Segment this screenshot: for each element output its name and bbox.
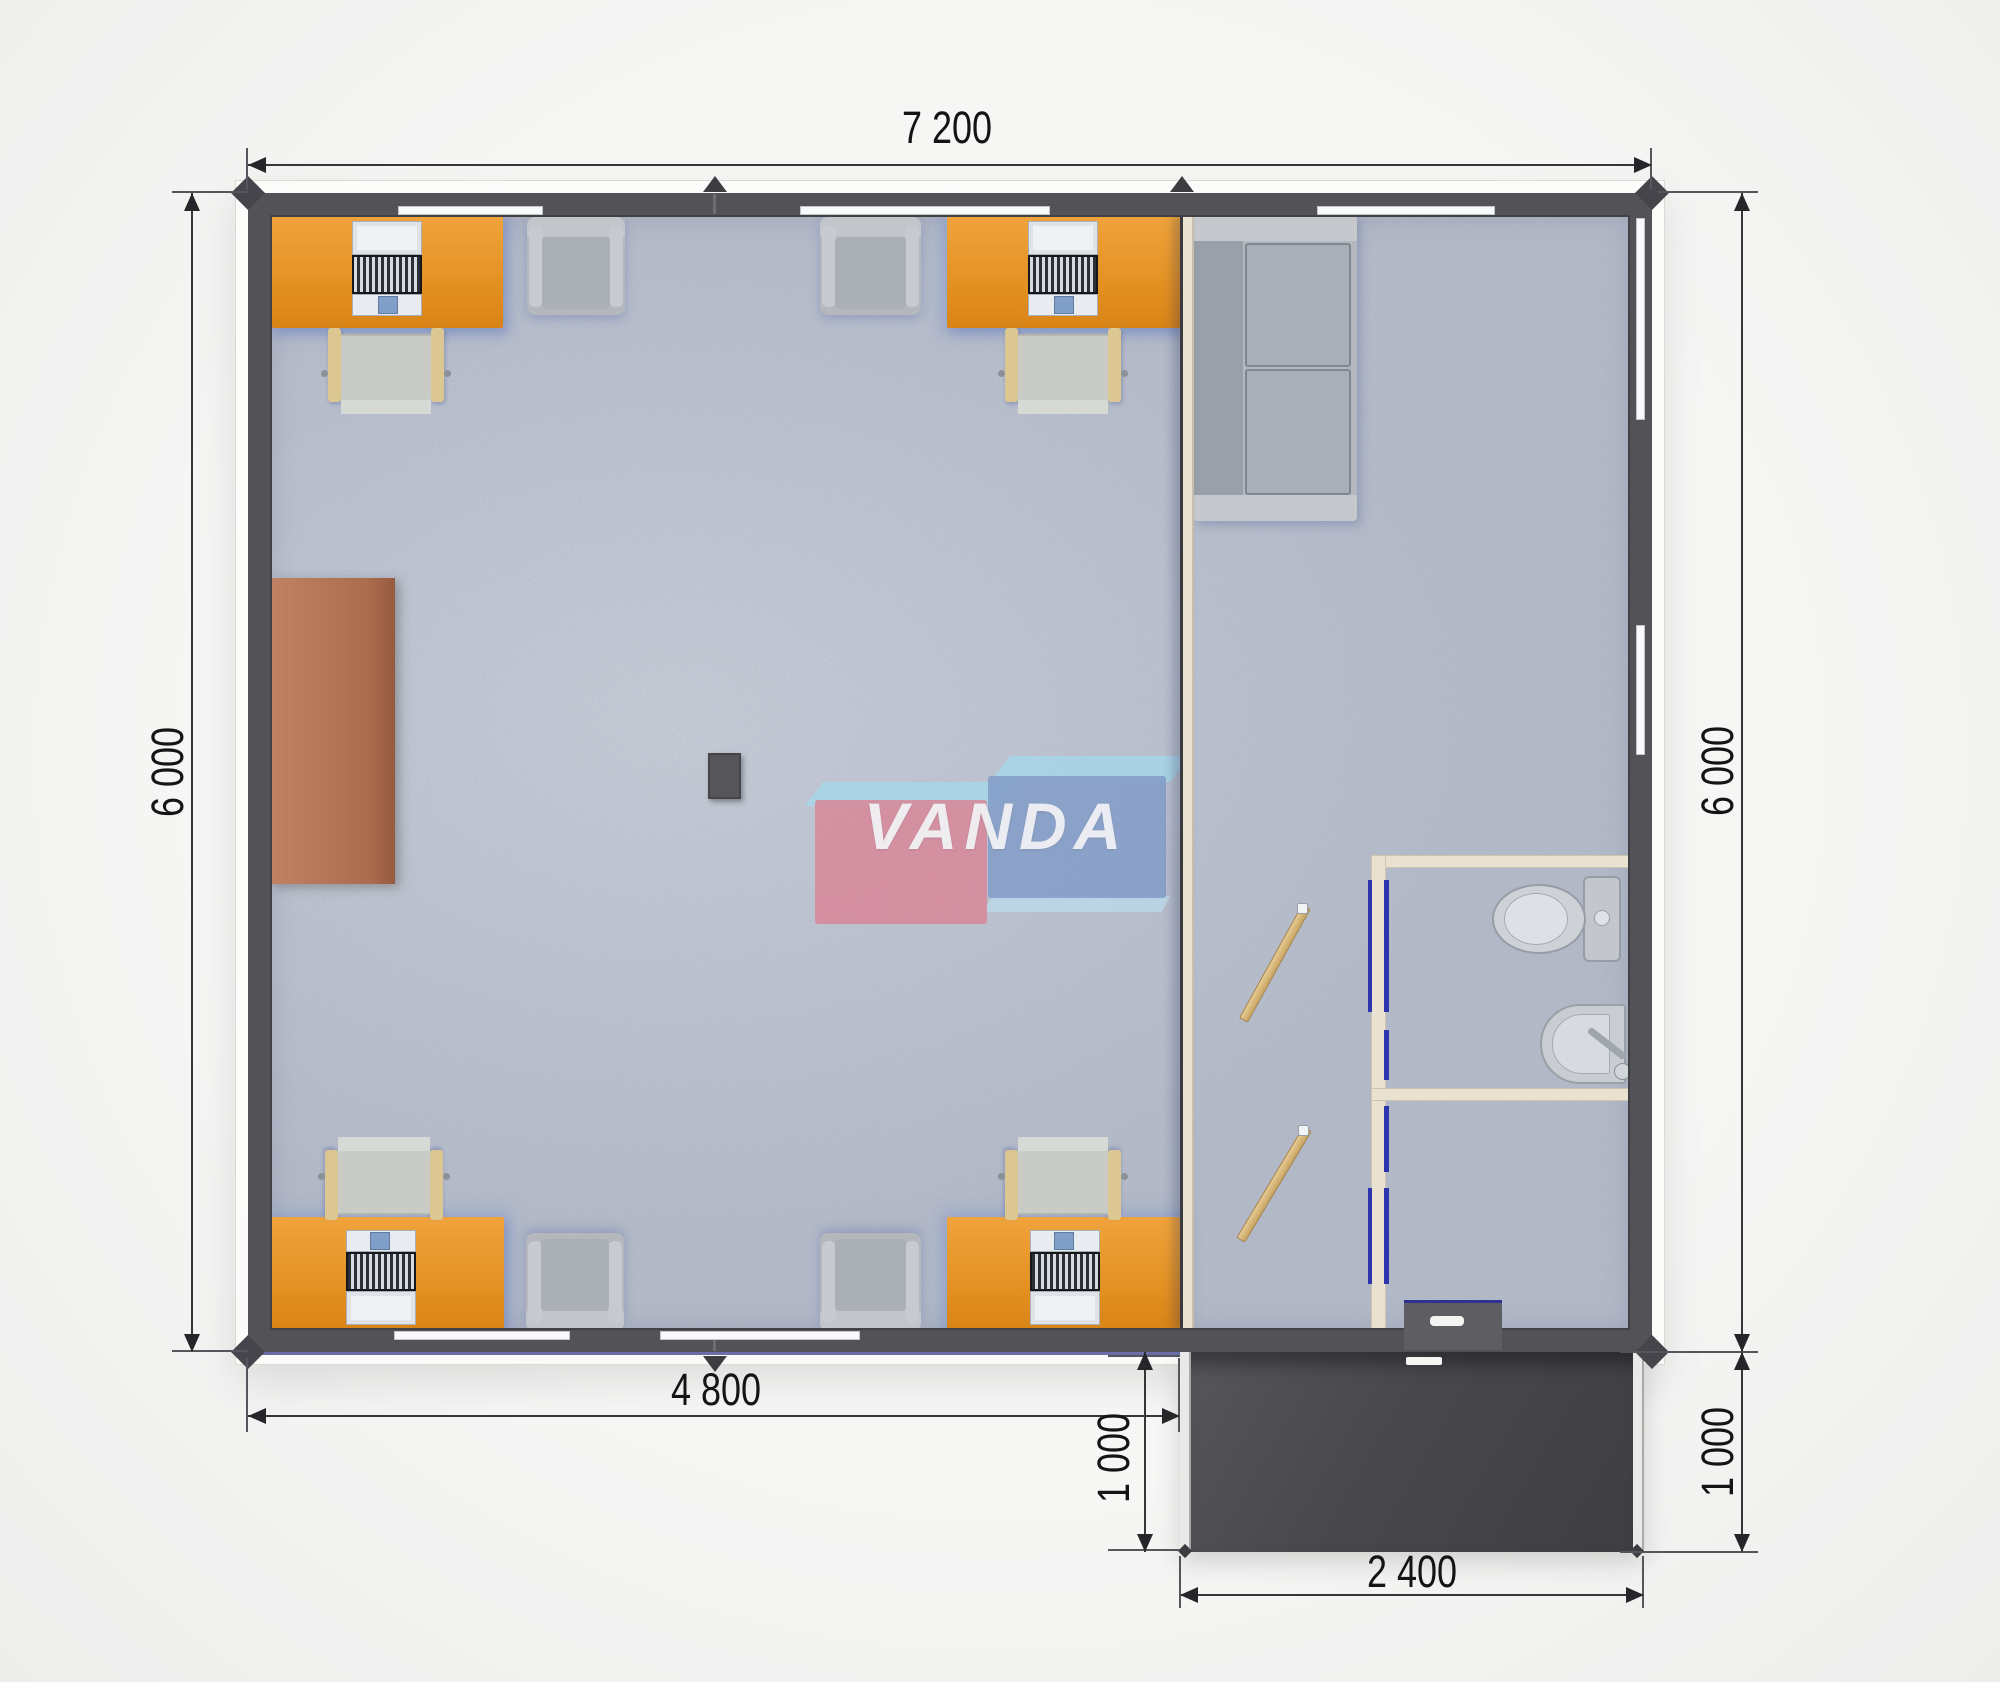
entrance-door-handle [1430,1316,1464,1326]
window-top-2 [800,206,1050,215]
window-right-1 [1636,218,1645,420]
dim-arrow [1162,1408,1180,1424]
exterior-walls [248,193,1652,1352]
dim-arrow [1626,1587,1644,1603]
porch-trim-right [1633,1352,1644,1552]
dim-label-porch-depth-left: 1 000 [1088,1370,1140,1546]
window-top-1 [398,206,543,215]
module-seam [713,194,716,214]
dim-arrow [1634,157,1652,173]
dim-label-porch-width: 2 400 [1308,1546,1516,1598]
dim-line-top [248,164,1652,166]
window-bottom-1 [394,1331,570,1340]
dim-label-overall-width: 7 200 [843,102,1051,154]
dim-module-mark [703,176,727,192]
floor-plan-canvas: VANDA [0,0,2000,1682]
porch-threshold [1406,1357,1442,1365]
dim-arrow [248,1408,266,1424]
window-top-3 [1317,206,1495,215]
dim-arrow [184,193,200,211]
dim-line-porch-depth [1144,1352,1146,1552]
dim-arrow [248,157,266,173]
dim-arrow [1734,193,1750,211]
dim-arrow [1180,1587,1198,1603]
dim-label-right-height: 6 000 [1692,683,1744,859]
dim-arrow [1137,1352,1153,1370]
dim-arrow [184,1334,200,1352]
dim-label-office-width: 4 800 [612,1364,820,1416]
entrance-porch [1180,1352,1644,1552]
window-bottom-2 [660,1331,860,1340]
dim-module-mark [1170,176,1194,192]
window-right-2 [1636,625,1645,755]
dim-label-porch-depth-right: 1 000 [1692,1364,1744,1540]
porch-trim-left [1180,1352,1191,1552]
wall-base-line [248,1352,1180,1355]
dim-label-left-height: 6 000 [142,684,194,860]
dim-arrow [1734,1334,1750,1352]
